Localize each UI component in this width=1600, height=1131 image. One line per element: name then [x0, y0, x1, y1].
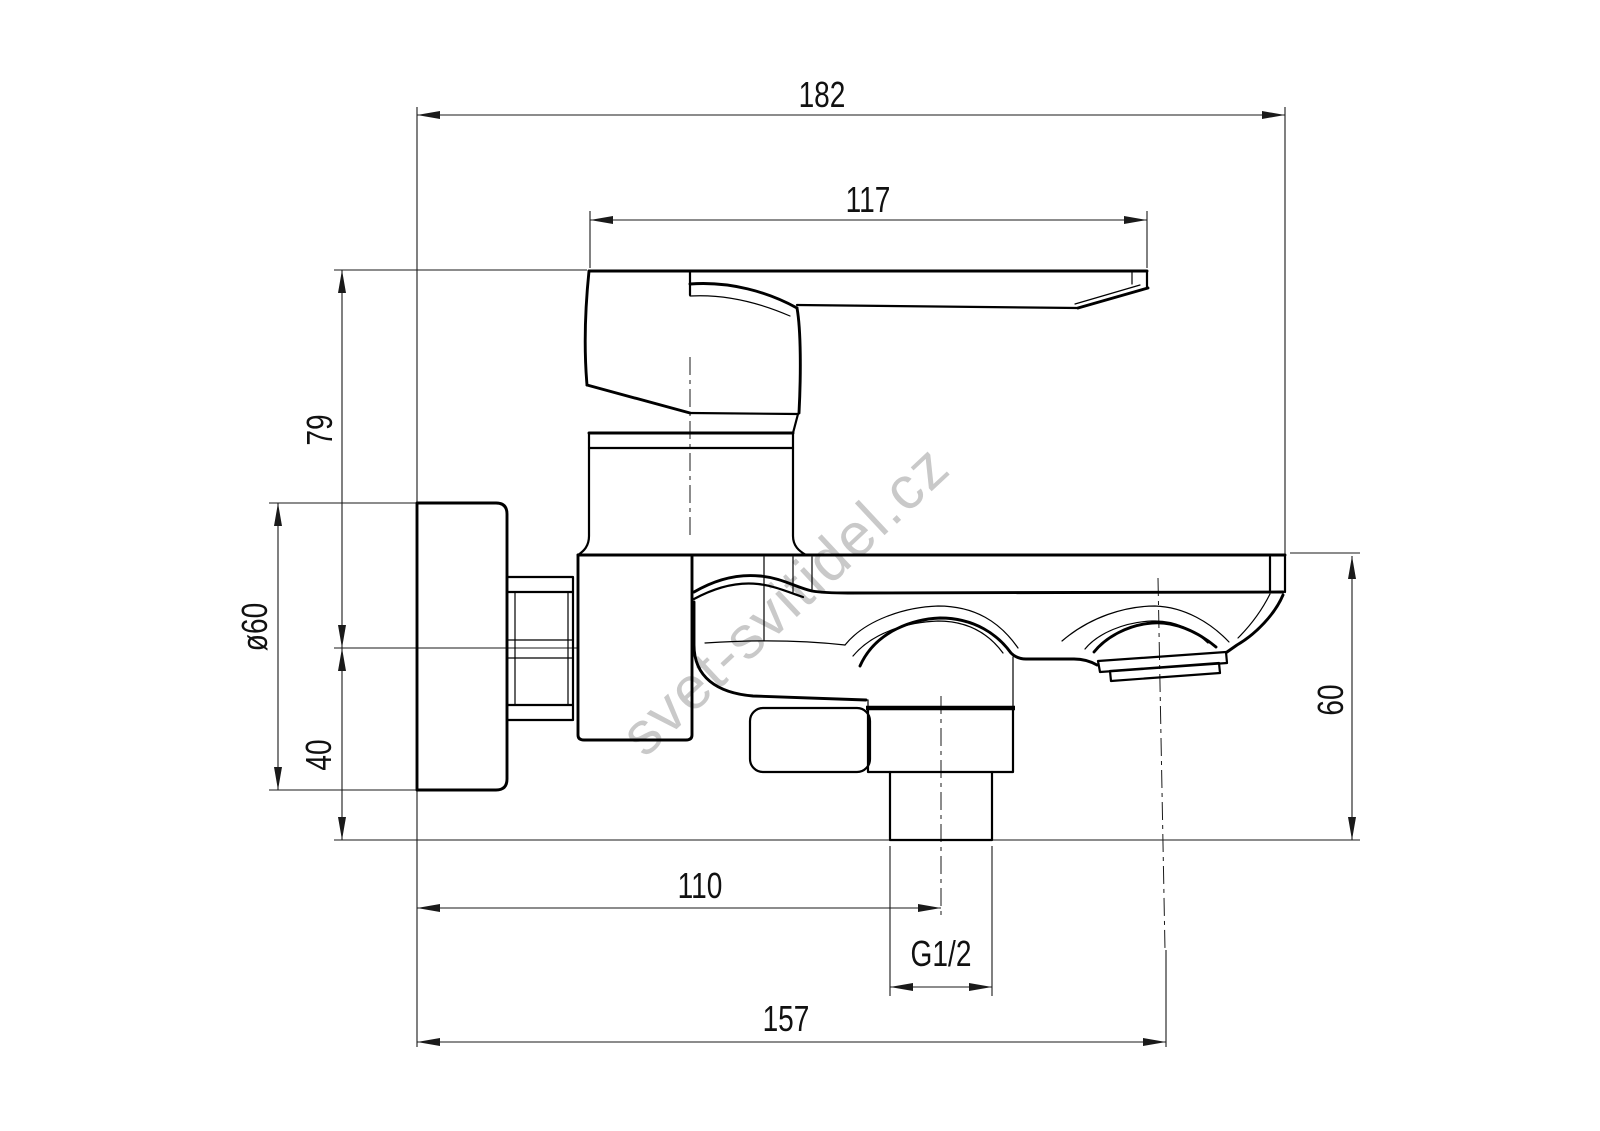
drawing-canvas: svet-svitidel.cz: [0, 0, 1600, 1131]
faucet-technical-drawing: [0, 0, 1600, 1131]
dimension-lines: [278, 115, 1352, 1042]
dimension-arrowheads: [274, 111, 1356, 1046]
faucet-outline-thick: [417, 271, 1285, 790]
faucet-detail-thin: [507, 271, 1270, 708]
centerlines: [690, 357, 1165, 950]
